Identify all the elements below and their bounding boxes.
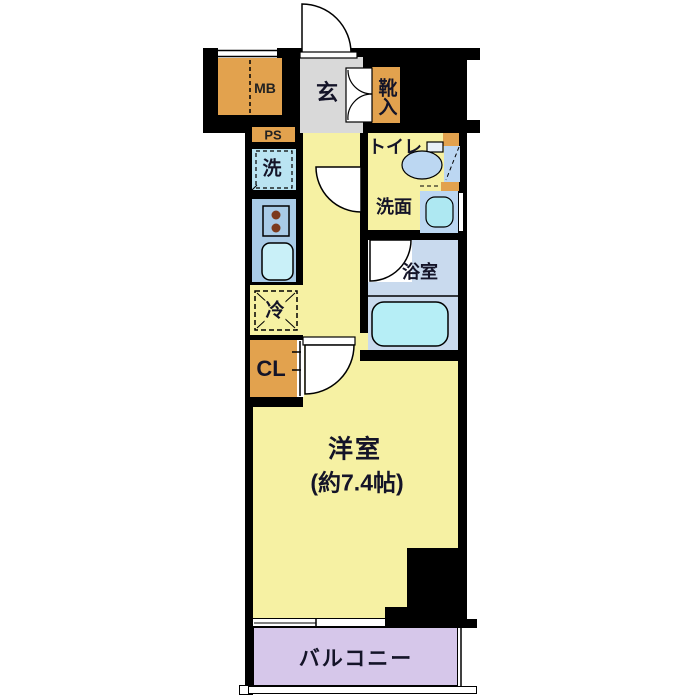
balcony-railing [240, 686, 477, 694]
entrance-label: 玄 [316, 82, 338, 104]
bath-bottom-wall [360, 350, 458, 361]
pipe-space-label: PS [264, 129, 281, 142]
toilet-door-panel [444, 146, 460, 182]
washroom-window [459, 193, 463, 231]
entrance-door-swing [302, 4, 351, 53]
bathroom-area [368, 240, 458, 352]
toilet-shelf-bottom [441, 182, 459, 191]
balcony-label: バルコニー [299, 649, 414, 670]
closet-label: CL [256, 358, 285, 380]
western-room-size-label: (約7.4帖) [310, 472, 403, 495]
mb-window [218, 48, 277, 58]
meter-box-label: MB [254, 81, 276, 95]
washbasin-alcove [420, 191, 458, 233]
shoe-cabinet-label: 靴入 [377, 78, 396, 116]
balcony-railing-post [239, 685, 249, 695]
kitchen-counter [250, 197, 298, 284]
toilet-label: トイレ [368, 138, 422, 156]
closet-door [297, 340, 304, 397]
western-room-label: 洋室 [328, 438, 382, 463]
bathroom-label: 浴室 [402, 263, 438, 281]
washer-label: 洗 [262, 160, 281, 179]
wall-tab [467, 619, 477, 628]
corner-wall-step-2 [385, 607, 407, 628]
toilet-shelf-top [443, 133, 459, 146]
floor-plan: MB PS 玄 靴入 洗 トイレ 洗面 浴室 冷 CL 洋室 (約7.4帖) バ… [0, 0, 700, 700]
refrigerator-label: 冷 [264, 301, 285, 322]
balcony-window [253, 618, 385, 627]
corner-wall-step [407, 548, 458, 628]
washroom-label: 洗面 [376, 198, 412, 216]
exterior-notch [466, 60, 481, 120]
